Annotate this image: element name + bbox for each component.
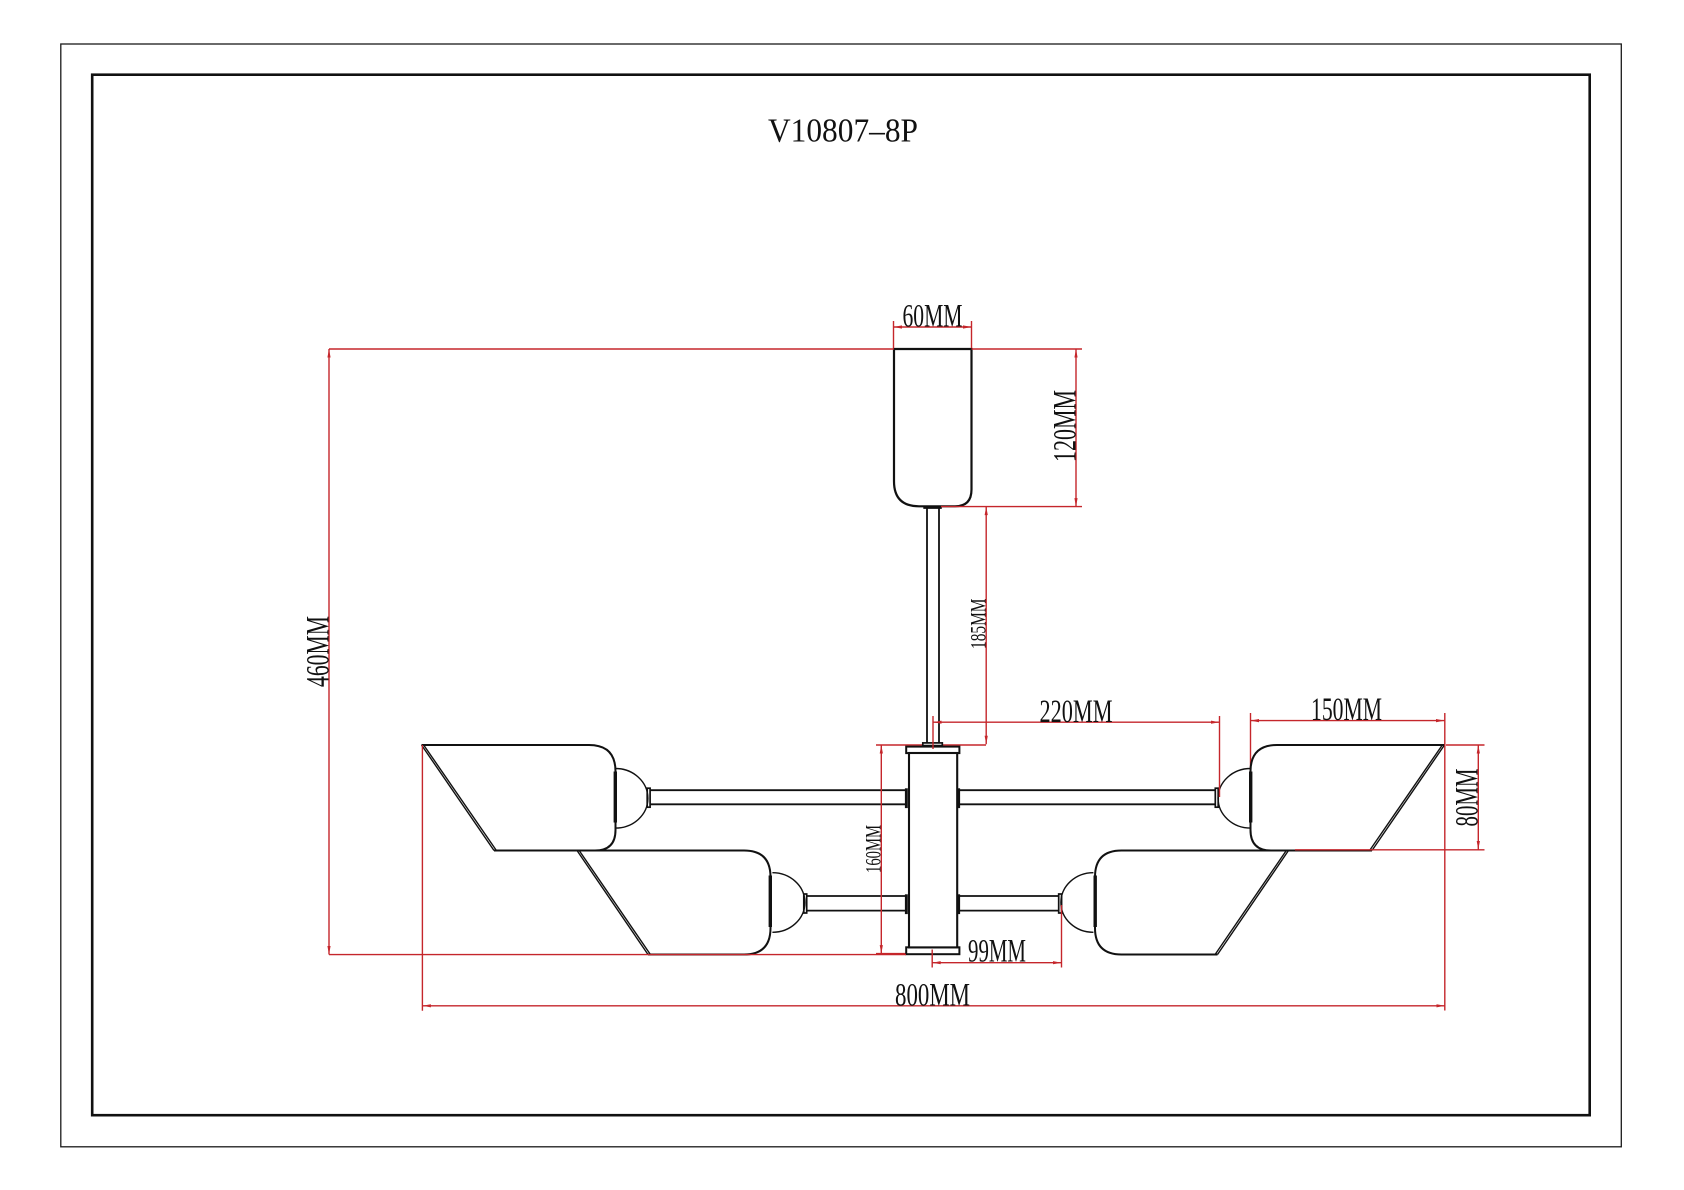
svg-text:800MM: 800MM: [895, 977, 970, 1013]
svg-text:V10807–8P: V10807–8P: [768, 113, 918, 150]
svg-text:220MM: 220MM: [1040, 694, 1113, 730]
svg-text:99MM: 99MM: [968, 934, 1026, 970]
svg-text:185MM: 185MM: [966, 599, 991, 650]
svg-text:150MM: 150MM: [1311, 692, 1382, 728]
svg-text:80MM: 80MM: [1450, 769, 1486, 827]
svg-text:120MM: 120MM: [1048, 390, 1084, 462]
svg-text:60MM: 60MM: [903, 299, 963, 335]
svg-text:460MM: 460MM: [301, 616, 337, 687]
svg-text:160MM: 160MM: [861, 825, 886, 873]
